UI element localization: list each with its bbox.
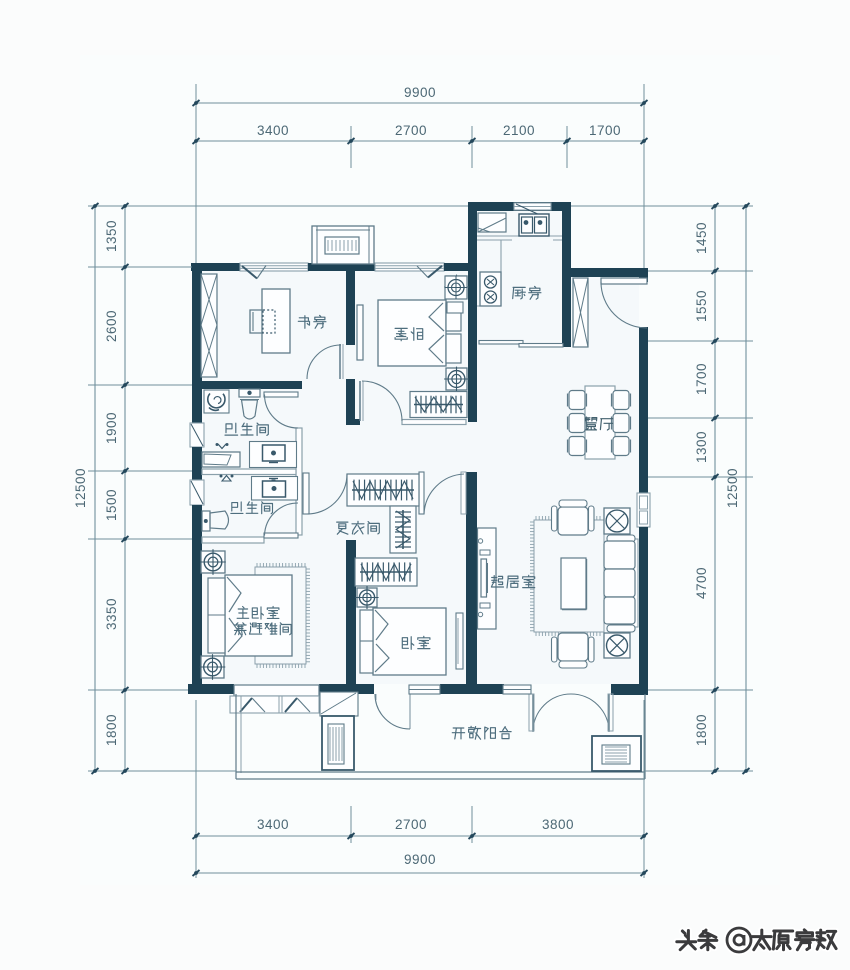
svg-text:1700: 1700 <box>694 363 709 395</box>
svg-text:9900: 9900 <box>404 852 436 867</box>
svg-text:1550: 1550 <box>694 290 709 322</box>
svg-text:3350: 3350 <box>104 598 119 630</box>
svg-text:3400: 3400 <box>257 817 289 832</box>
svg-text:1800: 1800 <box>104 714 119 746</box>
svg-text:1350: 1350 <box>104 220 119 252</box>
svg-text:1900: 1900 <box>104 412 119 444</box>
svg-text:12500: 12500 <box>73 468 88 508</box>
svg-text:3800: 3800 <box>542 817 574 832</box>
svg-text:4700: 4700 <box>694 567 709 599</box>
svg-text:1300: 1300 <box>694 431 709 463</box>
svg-text:1500: 1500 <box>104 489 119 521</box>
svg-text:1800: 1800 <box>694 714 709 746</box>
svg-text:9900: 9900 <box>404 85 436 100</box>
svg-text:2100: 2100 <box>503 123 535 138</box>
svg-text:2600: 2600 <box>104 310 119 342</box>
svg-text:3400: 3400 <box>257 123 289 138</box>
svg-text:12500: 12500 <box>725 468 740 508</box>
svg-text:2700: 2700 <box>395 123 427 138</box>
svg-text:1450: 1450 <box>694 222 709 254</box>
svg-text:1700: 1700 <box>589 123 621 138</box>
svg-text:2700: 2700 <box>395 817 427 832</box>
